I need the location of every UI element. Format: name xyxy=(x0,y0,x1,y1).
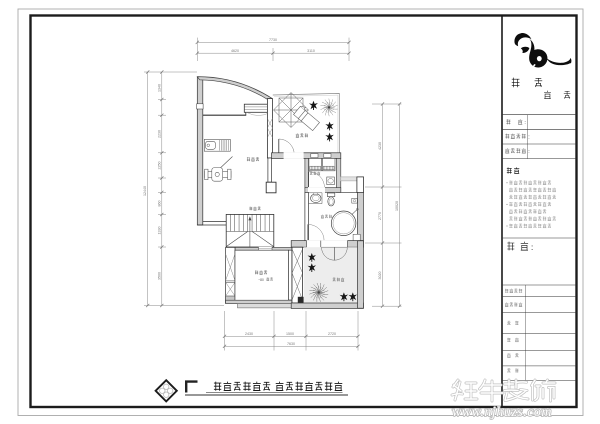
svg-text:2430: 2430 xyxy=(245,332,253,336)
svg-text::: : xyxy=(528,134,529,140)
svg-text:www.njhuzs.com: www.njhuzs.com xyxy=(452,405,552,420)
svg-text:1330: 1330 xyxy=(157,227,161,235)
svg-text:2230: 2230 xyxy=(157,130,161,138)
svg-text::: : xyxy=(524,120,526,126)
svg-text:12440: 12440 xyxy=(143,186,147,196)
svg-text:7630: 7630 xyxy=(287,342,295,346)
svg-text:1500: 1500 xyxy=(286,332,294,336)
svg-text:3110: 3110 xyxy=(307,49,315,53)
svg-text::: : xyxy=(528,149,529,155)
svg-text:3020: 3020 xyxy=(378,272,382,280)
svg-text:7730: 7730 xyxy=(269,38,277,42)
svg-text:~80: ~80 xyxy=(258,278,264,282)
svg-text:10020: 10020 xyxy=(395,201,399,211)
svg-text::: : xyxy=(531,243,533,252)
svg-text:1340: 1340 xyxy=(157,84,161,92)
svg-text:2770: 2770 xyxy=(378,212,382,220)
svg-text:2250: 2250 xyxy=(157,162,161,170)
svg-text:4230: 4230 xyxy=(378,142,382,150)
svg-text:2720: 2720 xyxy=(328,332,336,336)
svg-text:3500: 3500 xyxy=(157,272,161,280)
svg-text:860: 860 xyxy=(157,201,161,207)
svg-text:4620: 4620 xyxy=(231,49,239,53)
